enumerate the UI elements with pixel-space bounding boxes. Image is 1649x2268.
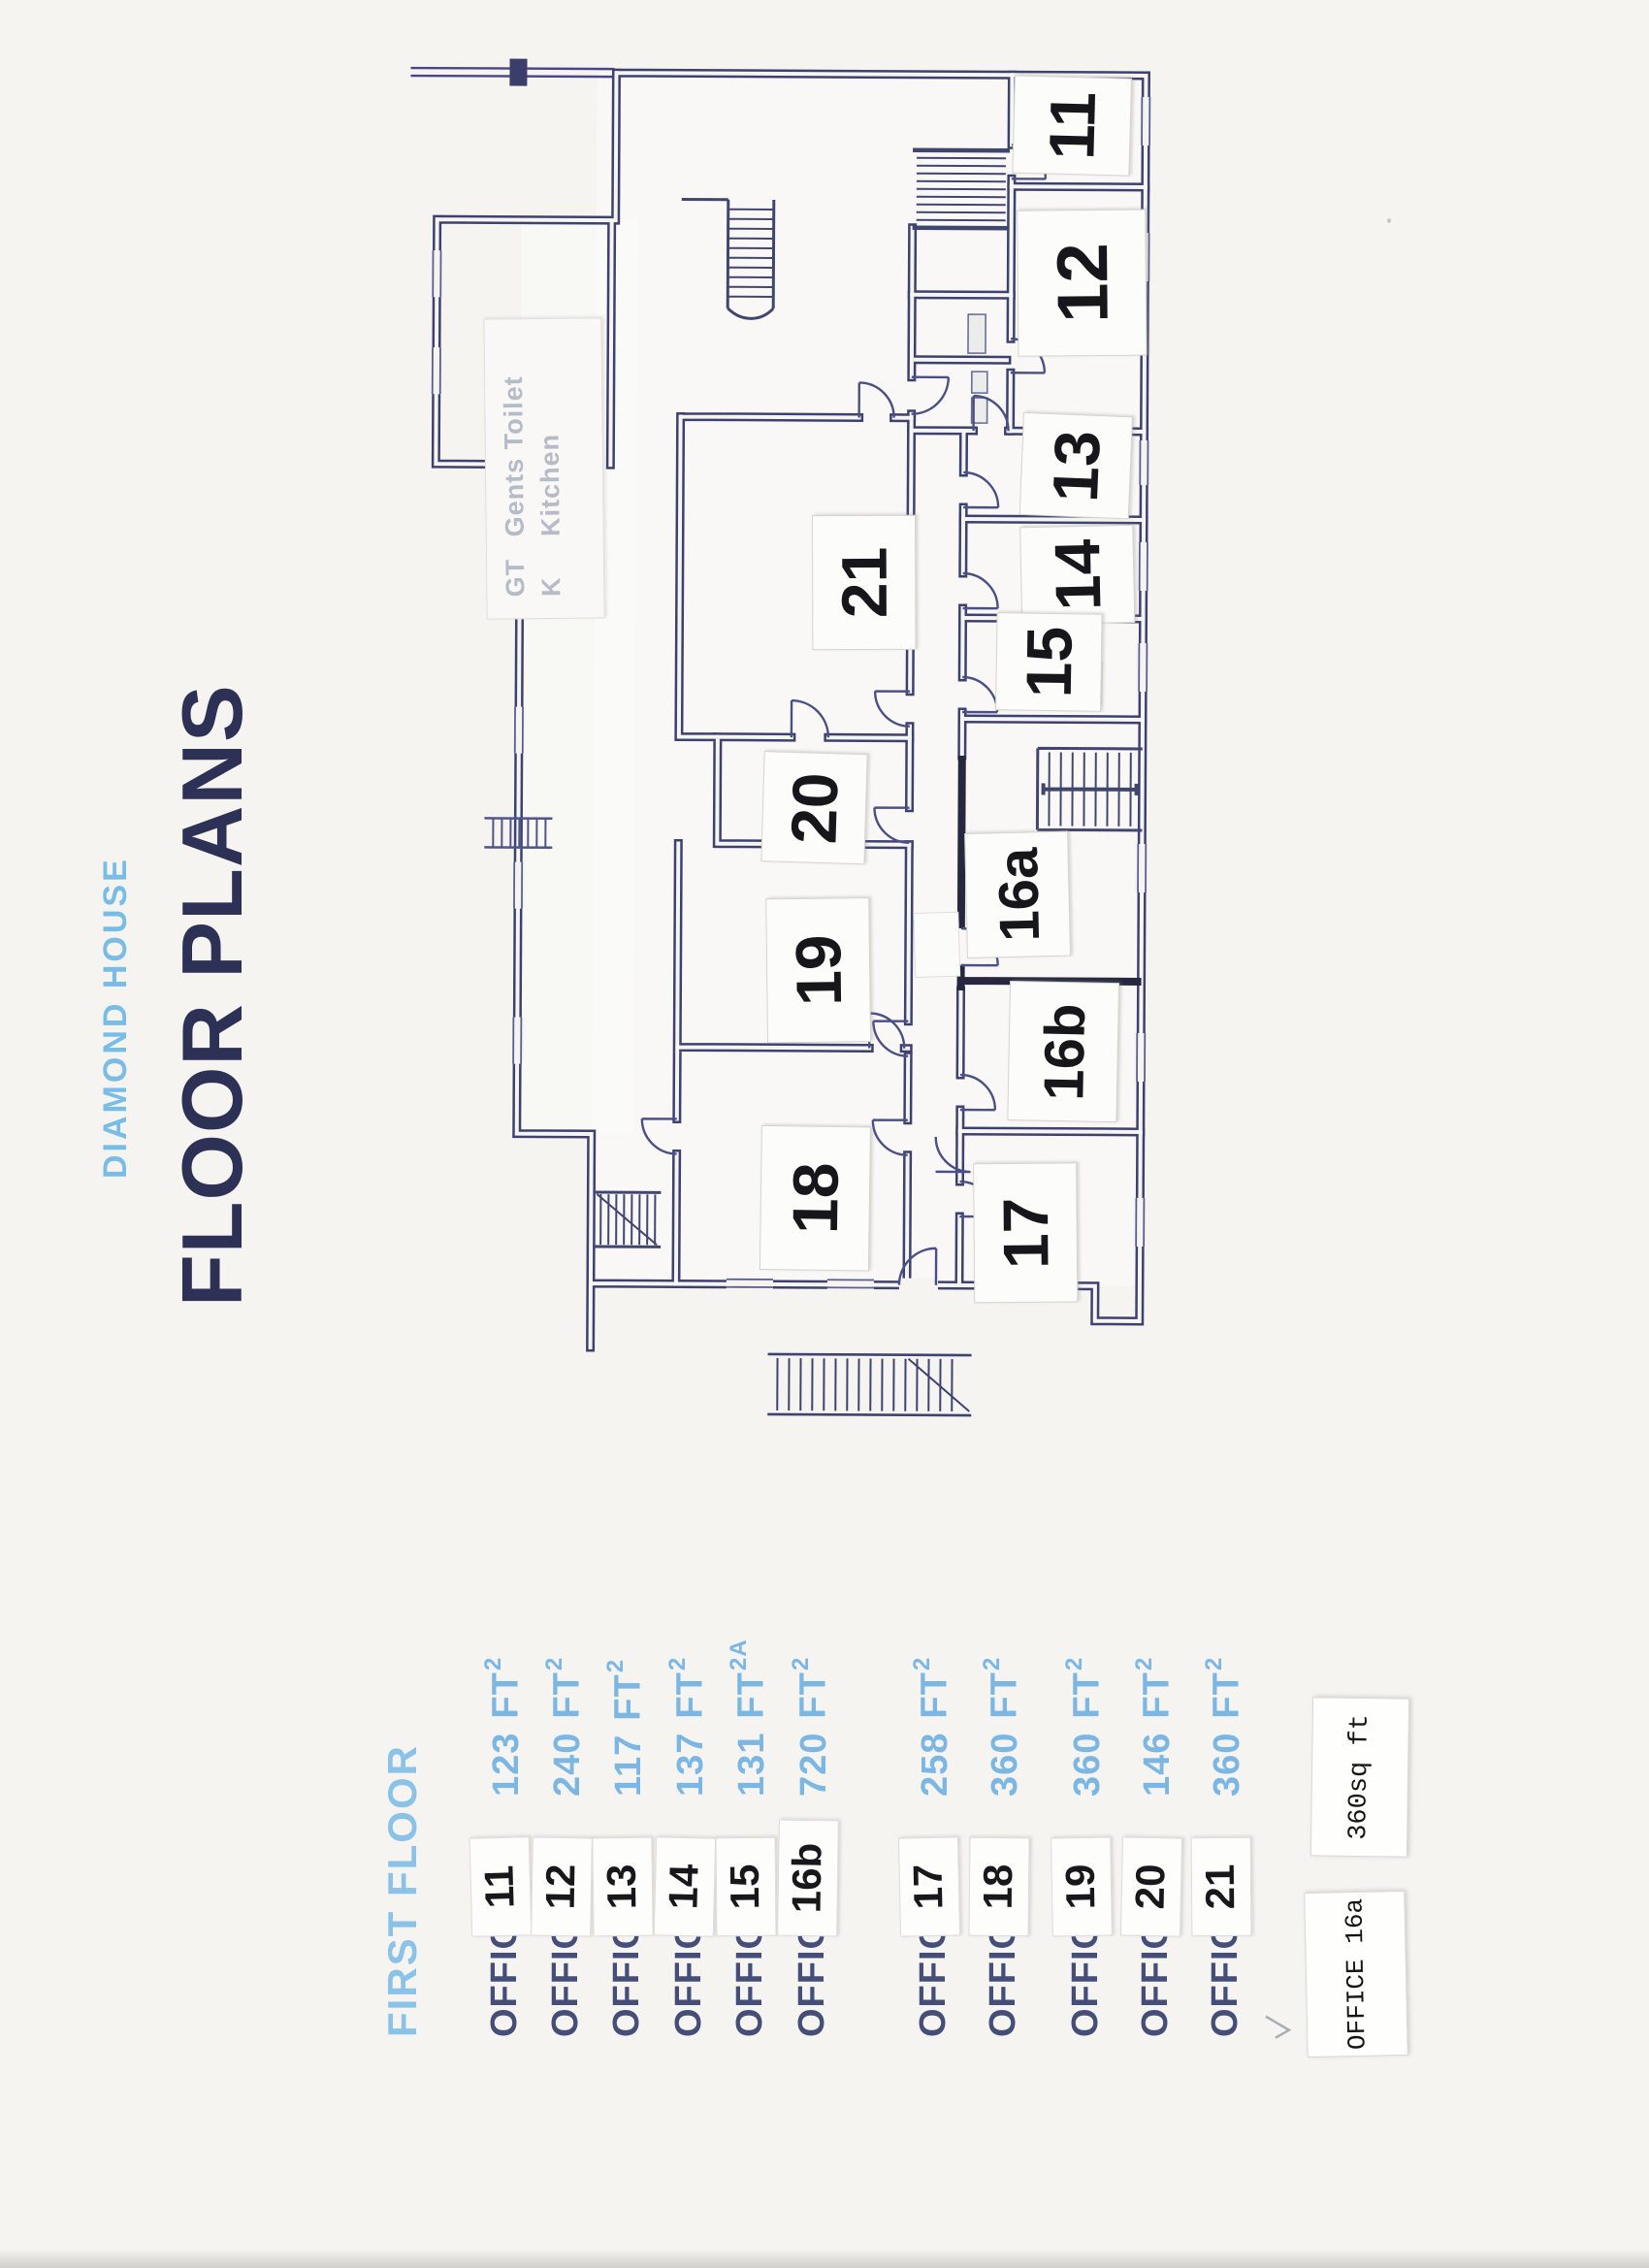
svg-text:11: 11 (1035, 91, 1109, 161)
room-label-15: 15 (996, 613, 1103, 712)
room-label-19: 19 (766, 898, 871, 1043)
room-label-14: 14 (1020, 525, 1135, 624)
room-label-21: 21 (812, 515, 915, 649)
room-label-16a: 16a (965, 831, 1071, 957)
room-label-11: 11 (1013, 76, 1132, 176)
room-label-16b: 16b (1008, 981, 1119, 1121)
pen-mark (1266, 2017, 1289, 2038)
plan-legend-patch: GT Gents Toilet K Kitchen (483, 317, 604, 619)
scanned-floor-plan-page: DIAMOND HOUSE FLOOR PLANS FIRST FLOOR OF… (0, 0, 1649, 2268)
legend-abbr: GT (501, 536, 532, 597)
boundary-gate-node (509, 59, 527, 86)
room-label-12: 12 (1018, 210, 1147, 356)
svg-text:13: 13 (1039, 429, 1114, 502)
svg-text:12: 12 (1042, 243, 1123, 323)
svg-text:19: 19 (782, 934, 855, 1006)
svg-text:17: 17 (989, 1197, 1062, 1269)
svg-text:21: 21 (828, 547, 900, 619)
room-label-18: 18 (760, 1125, 870, 1271)
svg-text:18: 18 (779, 1162, 852, 1234)
legend-label: Gents Toilet (499, 375, 531, 536)
landscape-page: DIAMOND HOUSE FLOOR PLANS FIRST FLOOR OF… (0, 0, 1649, 2268)
legend-row-gents-toilet: GT Gents Toilet (498, 319, 531, 597)
floor-plan-drawing: 11 12 13 14 15 (0, 0, 1649, 2268)
svg-text:15: 15 (1013, 626, 1085, 698)
svg-text:20: 20 (777, 771, 851, 845)
room-label-13: 13 (1019, 412, 1132, 518)
room-label-20: 20 (761, 752, 867, 864)
stair-external-left (767, 1354, 971, 1415)
legend-row-kitchen: K Kitchen (533, 319, 566, 597)
legend-abbr: K (536, 536, 567, 597)
room-label-17: 17 (974, 1163, 1078, 1303)
legend-label: Kitchen (535, 434, 566, 536)
svg-text:16a: 16a (986, 846, 1051, 942)
svg-text:14: 14 (1041, 538, 1115, 611)
svg-text:16b: 16b (1032, 1003, 1097, 1101)
